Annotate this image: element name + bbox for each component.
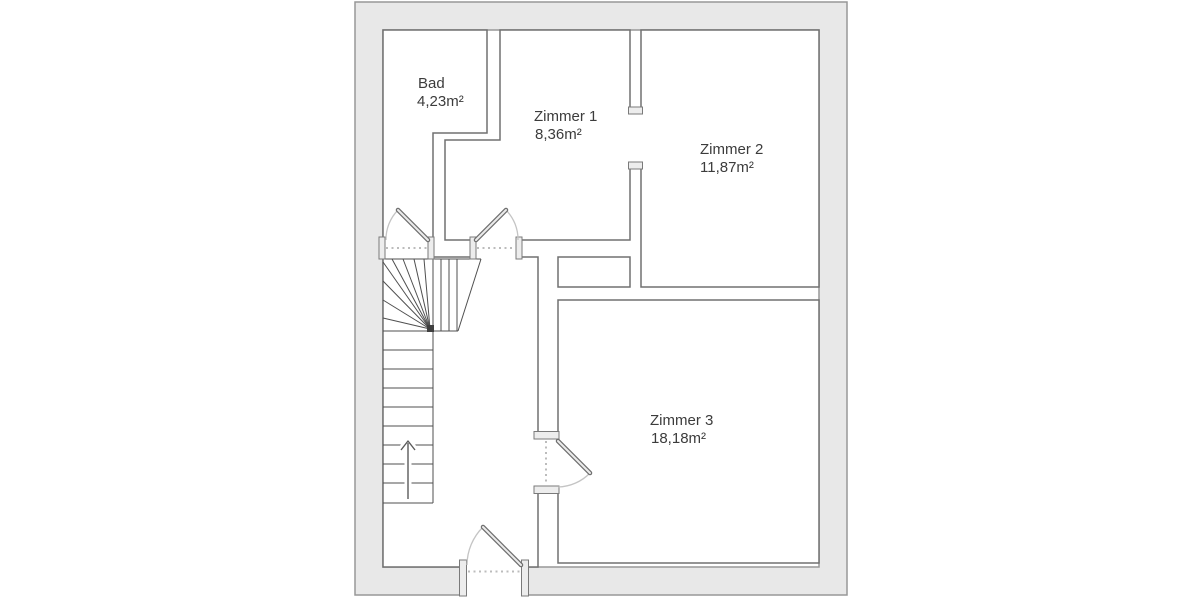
room-label-zimmer1-area: 8,36m² bbox=[535, 126, 582, 143]
room-label-zimmer3-area: 18,18m² bbox=[651, 430, 706, 447]
room-label-bad-area: 4,23m² bbox=[417, 93, 464, 110]
room-label-bad-name: Bad bbox=[418, 75, 445, 92]
passage-jamb-top bbox=[629, 107, 643, 114]
hallway bbox=[383, 257, 538, 567]
room-label-zimmer2-area: 11,87m² bbox=[700, 159, 754, 176]
shaft-niche bbox=[558, 257, 630, 287]
entry-door-jamb-left bbox=[460, 560, 467, 596]
stair-newel-post bbox=[427, 325, 434, 332]
room-label-zimmer3-name: Zimmer 3 bbox=[650, 412, 713, 429]
room-label-zimmer1-name: Zimmer 1 bbox=[534, 108, 597, 125]
opening-zimmer3-door bbox=[537, 439, 560, 486]
opening-bad-door bbox=[385, 239, 428, 259]
zimmer1-door-jamb-right bbox=[516, 237, 522, 259]
floor-plan-canvas: Bad 4,23m² Zimmer 1 8,36m² Zimmer 2 11,8… bbox=[0, 0, 1200, 600]
zimmer3-door-jamb-top bbox=[534, 432, 559, 440]
floor-plan: Bad 4,23m² Zimmer 1 8,36m² Zimmer 2 11,8… bbox=[0, 0, 1200, 600]
opening-zimmer1-zimmer2 bbox=[629, 114, 643, 162]
passage-jamb-bottom bbox=[629, 162, 643, 169]
zimmer3-door-jamb-bottom bbox=[534, 486, 559, 494]
bad-door-jamb-left bbox=[379, 237, 385, 259]
room-label-zimmer2-name: Zimmer 2 bbox=[700, 141, 763, 158]
